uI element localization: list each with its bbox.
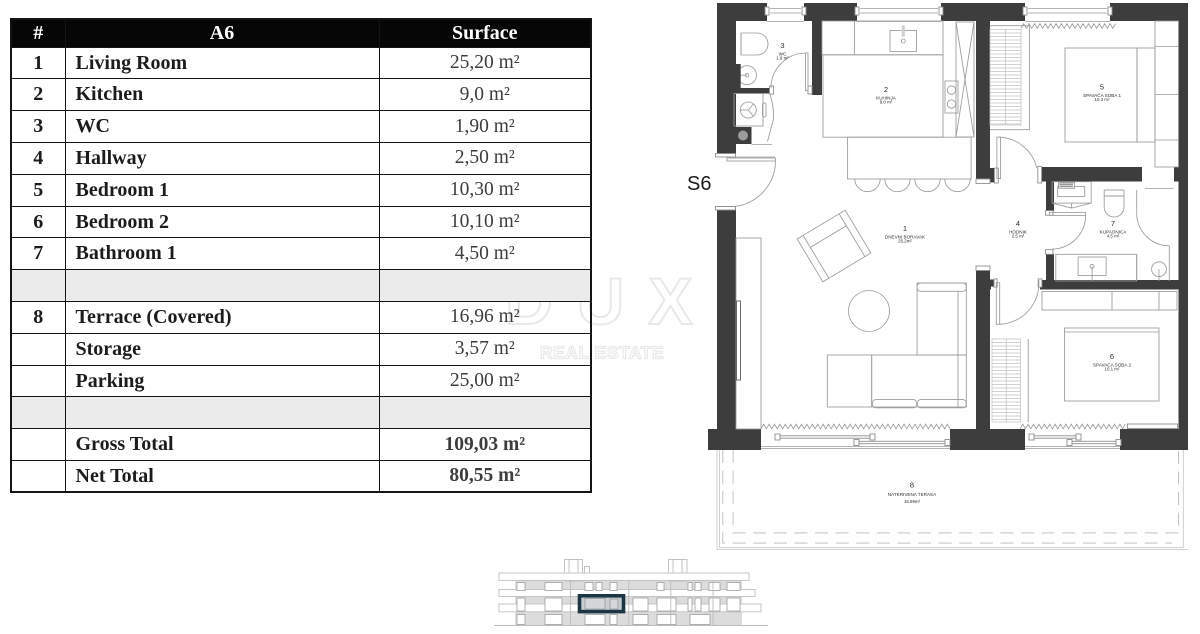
svg-text:9.0 m²: 9.0 m² <box>880 99 893 104</box>
svg-text:1: 1 <box>903 224 907 233</box>
svg-text:3: 3 <box>780 41 784 50</box>
svg-text:4: 4 <box>1016 219 1020 228</box>
svg-text:25.2m²: 25.2m² <box>898 238 912 243</box>
svg-text:10.1 m²: 10.1 m² <box>1105 366 1120 371</box>
svg-text:1.9 m²: 1.9 m² <box>776 55 789 60</box>
svg-text:5: 5 <box>1100 83 1104 92</box>
svg-text:NATKRIVENA TERASA: NATKRIVENA TERASA <box>888 492 937 497</box>
svg-text:6: 6 <box>1110 352 1114 361</box>
svg-text:7: 7 <box>1111 219 1115 228</box>
svg-text:8: 8 <box>910 481 914 490</box>
svg-text:S6: S6 <box>687 173 711 195</box>
svg-text:10.3 m²: 10.3 m² <box>1095 97 1110 102</box>
svg-text:2: 2 <box>884 85 888 94</box>
svg-text:16.99m²: 16.99m² <box>904 499 921 504</box>
svg-text:4.5 m²: 4.5 m² <box>1107 233 1120 238</box>
svg-text:2.5 m²: 2.5 m² <box>1012 233 1025 238</box>
